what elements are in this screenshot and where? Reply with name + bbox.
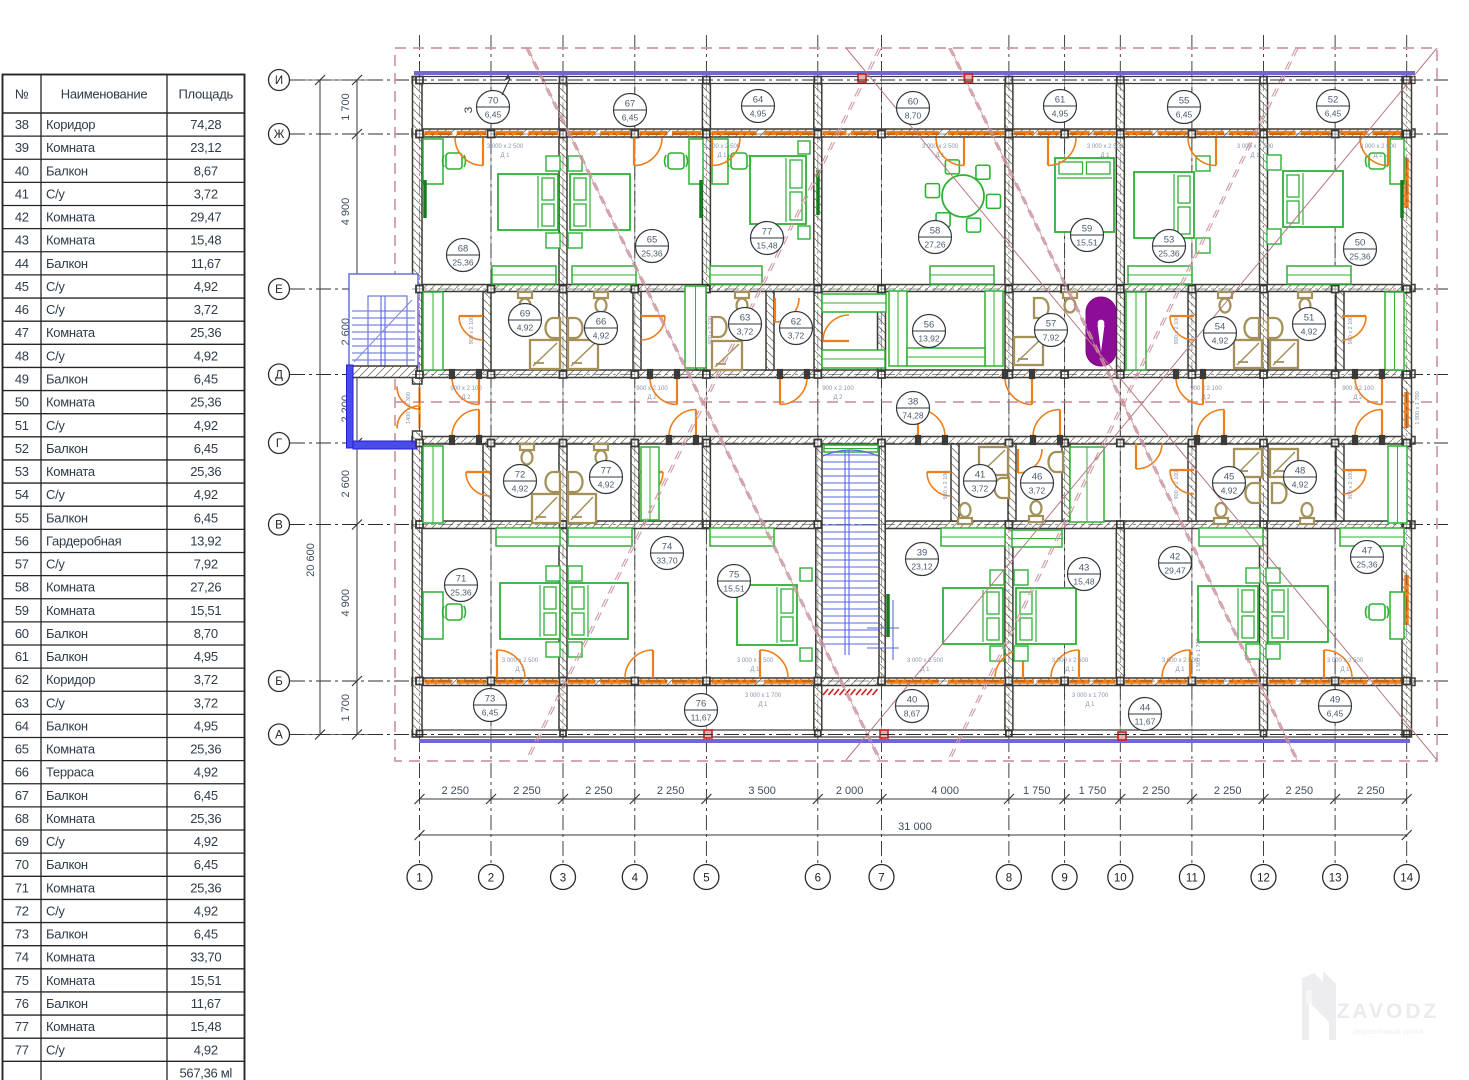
svg-text:567,36 мl: 567,36 мl xyxy=(180,1065,233,1080)
svg-text:15,51: 15,51 xyxy=(190,603,221,618)
svg-text:25,36: 25,36 xyxy=(1356,560,1378,570)
svg-text:72: 72 xyxy=(515,470,526,481)
svg-text:25,36: 25,36 xyxy=(190,742,221,757)
svg-text:Д 1: Д 1 xyxy=(1373,153,1383,159)
svg-text:Д 1: Д 1 xyxy=(750,667,760,673)
svg-text:4,92: 4,92 xyxy=(512,484,529,494)
svg-text:6,45: 6,45 xyxy=(485,110,502,120)
svg-text:57: 57 xyxy=(1046,319,1057,330)
svg-text:72: 72 xyxy=(15,903,29,918)
svg-text:55: 55 xyxy=(15,510,29,525)
svg-text:Д 1: Д 1 xyxy=(500,153,510,159)
svg-text:Комната: Комната xyxy=(46,973,96,988)
svg-text:3 000 x 2 500: 3 000 x 2 500 xyxy=(1162,658,1199,664)
svg-text:50: 50 xyxy=(15,395,29,410)
svg-text:69: 69 xyxy=(520,309,531,320)
svg-text:4,92: 4,92 xyxy=(194,903,218,918)
svg-text:3 000 x 2 500: 3 000 x 2 500 xyxy=(1087,144,1124,150)
svg-text:Комната: Комната xyxy=(46,325,96,340)
svg-text:44: 44 xyxy=(1140,703,1151,714)
svg-text:В: В xyxy=(275,520,283,532)
svg-text:46: 46 xyxy=(1032,472,1043,483)
svg-text:3,72: 3,72 xyxy=(788,331,805,341)
svg-text:53: 53 xyxy=(1164,235,1175,246)
svg-text:4,95: 4,95 xyxy=(194,649,218,664)
svg-text:51: 51 xyxy=(15,418,29,433)
svg-text:Наименование: Наименование xyxy=(61,86,148,101)
svg-text:29,47: 29,47 xyxy=(190,210,221,225)
svg-text:З: З xyxy=(463,106,475,113)
svg-text:56: 56 xyxy=(15,533,29,548)
svg-text:15,51: 15,51 xyxy=(190,973,221,988)
svg-text:Д 1: Д 1 xyxy=(717,153,727,159)
svg-text:900 x 2 100: 900 x 2 100 xyxy=(1174,316,1180,345)
svg-text:Терраса: Терраса xyxy=(46,765,95,780)
svg-text:47: 47 xyxy=(15,325,29,340)
svg-text:69: 69 xyxy=(15,834,29,849)
svg-text:59: 59 xyxy=(15,603,29,618)
svg-text:Балкон: Балкон xyxy=(46,441,88,456)
svg-text:Д 1: Д 1 xyxy=(758,702,768,708)
svg-text:29,47: 29,47 xyxy=(1164,566,1186,576)
svg-text:900 x 2 100: 900 x 2 100 xyxy=(878,316,884,345)
svg-text:А: А xyxy=(275,730,283,742)
svg-text:4,92: 4,92 xyxy=(593,331,610,341)
svg-text:40: 40 xyxy=(907,695,918,706)
svg-text:4,92: 4,92 xyxy=(1221,486,1238,496)
svg-text:33,70: 33,70 xyxy=(656,556,678,566)
svg-text:25,36: 25,36 xyxy=(452,258,474,268)
svg-text:39: 39 xyxy=(917,548,928,559)
svg-text:61: 61 xyxy=(15,649,29,664)
svg-text:13,92: 13,92 xyxy=(190,533,221,548)
svg-text:Д 2: Д 2 xyxy=(833,395,843,401)
svg-text:Балкон: Балкон xyxy=(46,927,88,942)
svg-text:71: 71 xyxy=(15,880,29,895)
svg-text:4,95: 4,95 xyxy=(194,718,218,733)
svg-text:С/у: С/у xyxy=(46,903,65,918)
svg-text:С/у: С/у xyxy=(46,834,65,849)
svg-text:59: 59 xyxy=(1082,224,1093,235)
svg-text:Д 1: Д 1 xyxy=(935,153,945,159)
svg-text:Д 1: Д 1 xyxy=(1085,702,1095,708)
svg-text:4 900: 4 900 xyxy=(340,198,352,226)
svg-text:25,36: 25,36 xyxy=(190,811,221,826)
svg-text:3 000 x 1 700: 3 000 x 1 700 xyxy=(1072,693,1109,699)
svg-text:73: 73 xyxy=(15,927,29,942)
svg-text:76: 76 xyxy=(15,996,29,1011)
svg-text:Д 1: Д 1 xyxy=(1175,667,1185,673)
svg-text:Балкон: Балкон xyxy=(46,996,88,1011)
svg-text:41: 41 xyxy=(975,470,986,481)
svg-text:3 000 x 2 500: 3 000 x 2 500 xyxy=(1327,658,1364,664)
svg-text:74,28: 74,28 xyxy=(902,411,924,421)
svg-text:С/у: С/у xyxy=(46,487,65,502)
svg-text:Комната: Комната xyxy=(46,395,96,410)
svg-text:3 000 x 1 700: 3 000 x 1 700 xyxy=(745,693,782,699)
svg-text:53: 53 xyxy=(15,464,29,479)
svg-text:15,48: 15,48 xyxy=(756,241,778,251)
svg-text:55: 55 xyxy=(1179,96,1190,107)
svg-text:Д 1: Д 1 xyxy=(1065,667,1075,673)
svg-text:44: 44 xyxy=(15,256,29,271)
svg-text:39: 39 xyxy=(15,140,29,155)
svg-text:Комната: Комната xyxy=(46,603,96,618)
svg-text:63: 63 xyxy=(15,695,29,710)
svg-text:12: 12 xyxy=(1257,873,1270,885)
svg-text:ZAVODZ: ZAVODZ xyxy=(1337,1000,1440,1023)
svg-text:Комната: Комната xyxy=(46,140,96,155)
svg-text:6,45: 6,45 xyxy=(1176,110,1193,120)
svg-text:6,45: 6,45 xyxy=(1327,709,1344,719)
svg-text:4,95: 4,95 xyxy=(750,109,767,119)
svg-text:Комната: Комната xyxy=(46,742,96,757)
svg-text:66: 66 xyxy=(15,765,29,780)
svg-text:48: 48 xyxy=(1295,466,1306,477)
svg-text:50: 50 xyxy=(1355,238,1366,249)
svg-text:77: 77 xyxy=(601,466,612,477)
svg-text:Балкон: Балкон xyxy=(46,371,88,386)
svg-text:71: 71 xyxy=(456,574,467,585)
svg-text:Д 2: Д 2 xyxy=(647,395,657,401)
svg-text:33,70: 33,70 xyxy=(190,950,221,965)
svg-text:2 000: 2 000 xyxy=(836,785,864,797)
svg-text:2 250: 2 250 xyxy=(441,785,469,797)
svg-text:8,70: 8,70 xyxy=(905,111,922,121)
svg-text:6,45: 6,45 xyxy=(194,927,218,942)
svg-text:С/у: С/у xyxy=(46,279,65,294)
svg-text:11,67: 11,67 xyxy=(691,713,712,723)
svg-text:4,92: 4,92 xyxy=(1212,336,1229,346)
svg-text:1 750: 1 750 xyxy=(1079,785,1107,797)
svg-text:3 000 x 2 500: 3 000 x 2 500 xyxy=(487,144,524,150)
svg-text:3 500: 3 500 xyxy=(748,785,776,797)
svg-text:4,92: 4,92 xyxy=(598,480,615,490)
svg-text:1 500 x 1 700: 1 500 x 1 700 xyxy=(1196,638,1202,671)
svg-text:Балкон: Балкон xyxy=(46,788,88,803)
svg-text:3,72: 3,72 xyxy=(972,484,989,494)
svg-text:60: 60 xyxy=(908,97,919,108)
svg-text:7,92: 7,92 xyxy=(1043,333,1060,343)
svg-text:10: 10 xyxy=(1114,873,1127,885)
svg-text:23,12: 23,12 xyxy=(190,140,221,155)
svg-text:58: 58 xyxy=(15,580,29,595)
svg-text:Д 1: Д 1 xyxy=(1250,153,1260,159)
svg-text:3 000 x 2 500: 3 000 x 2 500 xyxy=(922,144,959,150)
svg-text:25,36: 25,36 xyxy=(1158,249,1180,259)
svg-text:С/у: С/у xyxy=(46,418,65,433)
svg-text:25,36: 25,36 xyxy=(641,249,663,259)
svg-text:67: 67 xyxy=(625,99,636,110)
svg-text:3 000 x 2 500: 3 000 x 2 500 xyxy=(1052,658,1089,664)
svg-text:5: 5 xyxy=(703,873,709,885)
svg-text:2 250: 2 250 xyxy=(1214,785,1242,797)
svg-text:15,48: 15,48 xyxy=(190,233,221,248)
svg-text:900 x 2 100: 900 x 2 100 xyxy=(1348,471,1354,500)
svg-text:41: 41 xyxy=(15,186,29,201)
svg-text:77: 77 xyxy=(762,227,773,238)
svg-text:11: 11 xyxy=(1186,873,1198,885)
svg-text:23,12: 23,12 xyxy=(911,562,933,572)
svg-text:4,92: 4,92 xyxy=(517,323,534,333)
svg-text:3,72: 3,72 xyxy=(194,672,218,687)
svg-text:6,45: 6,45 xyxy=(194,371,218,386)
svg-text:54: 54 xyxy=(15,487,29,502)
svg-text:62: 62 xyxy=(791,317,802,328)
svg-text:2 250: 2 250 xyxy=(1286,785,1314,797)
svg-text:Д 1: Д 1 xyxy=(920,667,930,673)
svg-text:27,26: 27,26 xyxy=(190,580,221,595)
svg-text:43: 43 xyxy=(15,233,29,248)
svg-text:15,48: 15,48 xyxy=(1073,577,1095,587)
svg-text:Коридор: Коридор xyxy=(46,672,95,687)
svg-text:4,92: 4,92 xyxy=(194,487,218,502)
svg-text:С/у: С/у xyxy=(46,302,65,317)
svg-text:11,67: 11,67 xyxy=(191,256,221,271)
svg-text:3 000 x 2 500: 3 000 x 2 500 xyxy=(1360,144,1397,150)
svg-text:Коридор: Коридор xyxy=(46,117,95,132)
svg-text:63: 63 xyxy=(740,313,751,324)
svg-text:4,92: 4,92 xyxy=(1292,480,1309,490)
svg-text:46: 46 xyxy=(15,302,29,317)
svg-text:6,45: 6,45 xyxy=(194,510,218,525)
svg-text:38: 38 xyxy=(15,117,29,132)
svg-text:60: 60 xyxy=(15,626,29,641)
svg-text:75: 75 xyxy=(15,973,29,988)
svg-text:1: 1 xyxy=(416,873,422,885)
svg-text:Комната: Комната xyxy=(46,210,96,225)
svg-text:45: 45 xyxy=(1224,472,1235,483)
svg-text:4 900: 4 900 xyxy=(340,589,352,617)
svg-text:8,67: 8,67 xyxy=(904,709,921,719)
svg-text:62: 62 xyxy=(15,672,29,687)
svg-text:Д 1: Д 1 xyxy=(1340,667,1350,673)
svg-text:25,36: 25,36 xyxy=(190,464,221,479)
svg-text:4,92: 4,92 xyxy=(194,348,218,363)
svg-text:4,92: 4,92 xyxy=(194,834,218,849)
svg-text:4,92: 4,92 xyxy=(1301,327,1318,337)
svg-text:8,70: 8,70 xyxy=(194,626,218,641)
svg-text:45: 45 xyxy=(15,279,29,294)
svg-text:25,36: 25,36 xyxy=(190,395,221,410)
svg-text:6,45: 6,45 xyxy=(194,788,218,803)
svg-text:3 000 x 2 500: 3 000 x 2 500 xyxy=(907,658,944,664)
svg-text:38: 38 xyxy=(908,397,919,408)
svg-text:73: 73 xyxy=(485,694,496,705)
svg-text:51: 51 xyxy=(1304,313,1315,324)
svg-text:Д: Д xyxy=(275,370,283,382)
svg-text:4: 4 xyxy=(632,873,639,885)
svg-text:15,51: 15,51 xyxy=(1076,238,1098,248)
svg-text:65: 65 xyxy=(15,742,29,757)
svg-text:8: 8 xyxy=(1006,873,1012,885)
svg-text:Комната: Комната xyxy=(46,811,96,826)
svg-text:61: 61 xyxy=(1055,95,1066,106)
svg-text:77: 77 xyxy=(15,1042,29,1057)
svg-text:11,67: 11,67 xyxy=(1135,717,1156,727)
svg-text:4,92: 4,92 xyxy=(194,765,218,780)
svg-text:900 x 2 100: 900 x 2 100 xyxy=(1348,316,1354,345)
svg-text:Балкон: Балкон xyxy=(46,626,88,641)
svg-text:27,26: 27,26 xyxy=(924,240,946,250)
svg-text:1 900 x 1 700: 1 900 x 1 700 xyxy=(1415,391,1421,424)
svg-text:65: 65 xyxy=(647,235,658,246)
svg-text:6,45: 6,45 xyxy=(622,113,639,123)
svg-text:15,51: 15,51 xyxy=(723,584,745,594)
svg-text:9: 9 xyxy=(1061,873,1067,885)
svg-text:3,72: 3,72 xyxy=(1029,486,1046,496)
svg-text:С/у: С/у xyxy=(46,557,65,572)
svg-text:900 x 2 100: 900 x 2 100 xyxy=(1174,471,1180,500)
svg-text:74: 74 xyxy=(15,950,29,965)
svg-text:40: 40 xyxy=(15,163,29,178)
svg-text:25,36: 25,36 xyxy=(1349,252,1371,262)
svg-text:Балкон: Балкон xyxy=(46,718,88,733)
svg-text:900 x 2 100: 900 x 2 100 xyxy=(1190,386,1222,392)
svg-text:4,95: 4,95 xyxy=(1052,109,1069,119)
svg-text:900 x 2 100: 900 x 2 100 xyxy=(943,471,949,500)
svg-text:25,36: 25,36 xyxy=(450,588,472,598)
svg-text:деревянные дома: деревянные дома xyxy=(1352,1026,1423,1036)
svg-text:900 x 2 100: 900 x 2 100 xyxy=(822,386,854,392)
svg-text:Комната: Комната xyxy=(46,1019,96,1034)
svg-text:2: 2 xyxy=(488,873,494,885)
svg-text:3,72: 3,72 xyxy=(737,327,754,337)
svg-text:Д 1: Д 1 xyxy=(515,667,525,673)
svg-text:47: 47 xyxy=(1362,546,1373,557)
svg-text:6,45: 6,45 xyxy=(482,708,499,718)
svg-text:6,45: 6,45 xyxy=(194,857,218,872)
svg-text:2 250: 2 250 xyxy=(585,785,613,797)
svg-text:3 000 x 2 500: 3 000 x 2 500 xyxy=(1237,144,1274,150)
svg-text:70: 70 xyxy=(15,857,29,872)
svg-text:43: 43 xyxy=(1079,563,1090,574)
svg-text:900 x 2 100: 900 x 2 100 xyxy=(450,386,482,392)
svg-text:4,92: 4,92 xyxy=(194,279,218,294)
svg-text:Комната: Комната xyxy=(46,464,96,479)
svg-text:С/у: С/у xyxy=(46,186,65,201)
svg-text:2 250: 2 250 xyxy=(657,785,685,797)
svg-text:77: 77 xyxy=(15,1019,29,1034)
svg-text:Г: Г xyxy=(276,438,283,450)
svg-text:74,28: 74,28 xyxy=(190,117,221,132)
svg-text:Комната: Комната xyxy=(46,880,96,895)
svg-text:64: 64 xyxy=(753,95,764,106)
svg-text:Е: Е xyxy=(275,284,283,296)
svg-text:42: 42 xyxy=(15,210,29,225)
svg-text:900 x 2 100: 900 x 2 100 xyxy=(469,316,475,345)
svg-text:74: 74 xyxy=(662,542,673,553)
svg-text:Ж: Ж xyxy=(274,129,285,141)
svg-text:42: 42 xyxy=(1170,552,1181,563)
svg-text:7: 7 xyxy=(878,873,884,885)
svg-text:1400 x 2 300: 1400 x 2 300 xyxy=(406,392,412,424)
svg-text:Балкон: Балкон xyxy=(46,510,88,525)
svg-text:13: 13 xyxy=(1329,873,1342,885)
svg-text:900 x 2 100: 900 x 2 100 xyxy=(1342,386,1374,392)
svg-text:49: 49 xyxy=(1330,695,1341,706)
svg-text:3 000 x 2 500: 3 000 x 2 500 xyxy=(704,144,741,150)
svg-text:6: 6 xyxy=(815,873,821,885)
svg-text:2 250: 2 250 xyxy=(1357,785,1385,797)
svg-text:С/у: С/у xyxy=(46,695,65,710)
svg-text:С/у: С/у xyxy=(46,1042,65,1057)
svg-text:Балкон: Балкон xyxy=(46,256,88,271)
svg-text:6,45: 6,45 xyxy=(194,441,218,456)
svg-text:25,36: 25,36 xyxy=(190,325,221,340)
svg-text:52: 52 xyxy=(1328,95,1339,106)
svg-text:Комната: Комната xyxy=(46,233,96,248)
svg-text:№: № xyxy=(15,86,29,101)
svg-text:25,36: 25,36 xyxy=(190,880,221,895)
svg-text:15,48: 15,48 xyxy=(190,1019,221,1034)
svg-text:68: 68 xyxy=(458,244,469,255)
svg-text:Площадь: Площадь xyxy=(179,86,234,101)
svg-text:4 000: 4 000 xyxy=(931,785,959,797)
svg-text:76: 76 xyxy=(696,699,707,710)
svg-text:67: 67 xyxy=(15,788,29,803)
svg-text:3: 3 xyxy=(560,873,566,885)
svg-text:2 250: 2 250 xyxy=(1142,785,1170,797)
svg-text:8,67: 8,67 xyxy=(194,163,218,178)
svg-text:14: 14 xyxy=(1400,873,1413,885)
svg-text:68: 68 xyxy=(15,811,29,826)
svg-text:1 700: 1 700 xyxy=(340,93,352,121)
svg-text:66: 66 xyxy=(596,317,607,328)
svg-text:49: 49 xyxy=(15,371,29,386)
svg-text:Д 2: Д 2 xyxy=(1353,395,1363,401)
svg-text:2 250: 2 250 xyxy=(513,785,541,797)
svg-text:13,92: 13,92 xyxy=(918,334,940,344)
svg-text:64: 64 xyxy=(15,718,29,733)
svg-text:56: 56 xyxy=(924,320,935,331)
svg-text:20 600: 20 600 xyxy=(305,543,317,577)
svg-text:3 000 x 2 500: 3 000 x 2 500 xyxy=(502,658,539,664)
svg-text:6,45: 6,45 xyxy=(1325,109,1342,119)
svg-text:54: 54 xyxy=(1215,322,1226,333)
svg-text:Комната: Комната xyxy=(46,950,96,965)
svg-text:3,72: 3,72 xyxy=(194,302,218,317)
svg-text:Д 2: Д 2 xyxy=(461,395,471,401)
svg-text:4,92: 4,92 xyxy=(194,418,218,433)
svg-text:31 000: 31 000 xyxy=(898,821,932,833)
svg-text:900 x 2 100: 900 x 2 100 xyxy=(708,316,714,345)
svg-text:7,92: 7,92 xyxy=(194,557,218,572)
svg-text:58: 58 xyxy=(930,226,941,237)
svg-text:Гардеробная: Гардеробная xyxy=(46,533,122,548)
svg-text:3 000 x 2 500: 3 000 x 2 500 xyxy=(737,658,774,664)
svg-text:Балкон: Балкон xyxy=(46,163,88,178)
svg-text:Балкон: Балкон xyxy=(46,649,88,664)
svg-text:Д 1: Д 1 xyxy=(1100,153,1110,159)
svg-text:Б: Б xyxy=(275,676,283,688)
svg-text:Балкон: Балкон xyxy=(46,857,88,872)
svg-text:Комната: Комната xyxy=(46,580,96,595)
svg-text:52: 52 xyxy=(15,441,29,456)
svg-text:57: 57 xyxy=(15,557,29,572)
svg-text:3,72: 3,72 xyxy=(194,695,218,710)
svg-text:4,92: 4,92 xyxy=(194,1042,218,1057)
svg-text:900 x 2 100: 900 x 2 100 xyxy=(636,386,668,392)
svg-text:48: 48 xyxy=(15,348,29,363)
svg-text:И: И xyxy=(275,75,283,87)
svg-text:70: 70 xyxy=(488,96,499,107)
svg-text:75: 75 xyxy=(729,570,740,581)
svg-text:1 750: 1 750 xyxy=(1023,785,1051,797)
svg-text:Д 2: Д 2 xyxy=(1201,395,1211,401)
svg-text:С/у: С/у xyxy=(46,348,65,363)
svg-text:1 700: 1 700 xyxy=(340,694,352,722)
